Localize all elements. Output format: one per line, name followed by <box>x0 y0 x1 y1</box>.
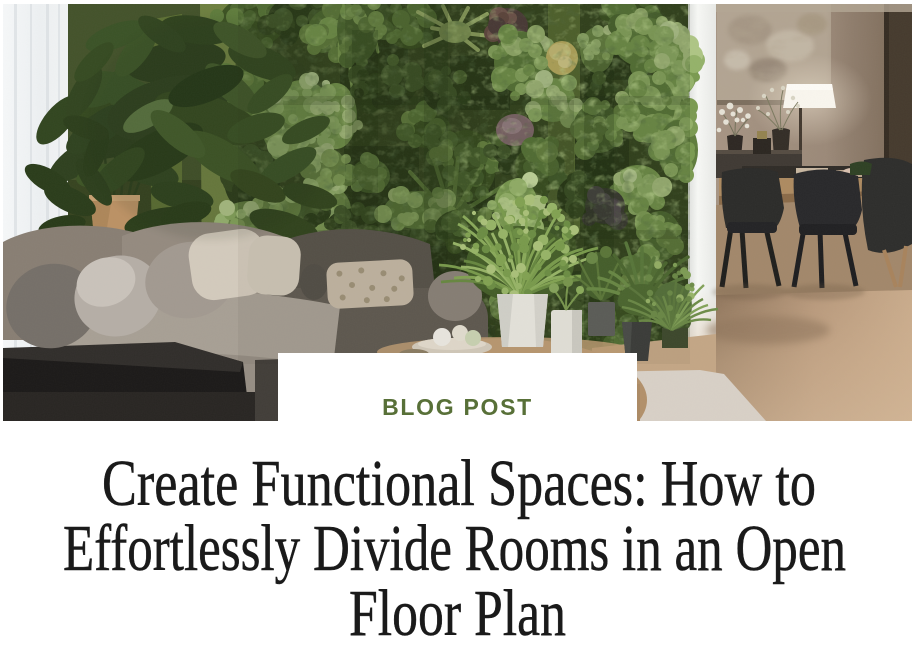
svg-text:Effortlessly Divide Rooms in a: Effortlessly Divide Rooms in an Open <box>63 512 846 585</box>
svg-text:Floor Plan: Floor Plan <box>349 577 566 647</box>
svg-text:Create Functional Spaces: How: Create Functional Spaces: How to <box>102 447 816 520</box>
